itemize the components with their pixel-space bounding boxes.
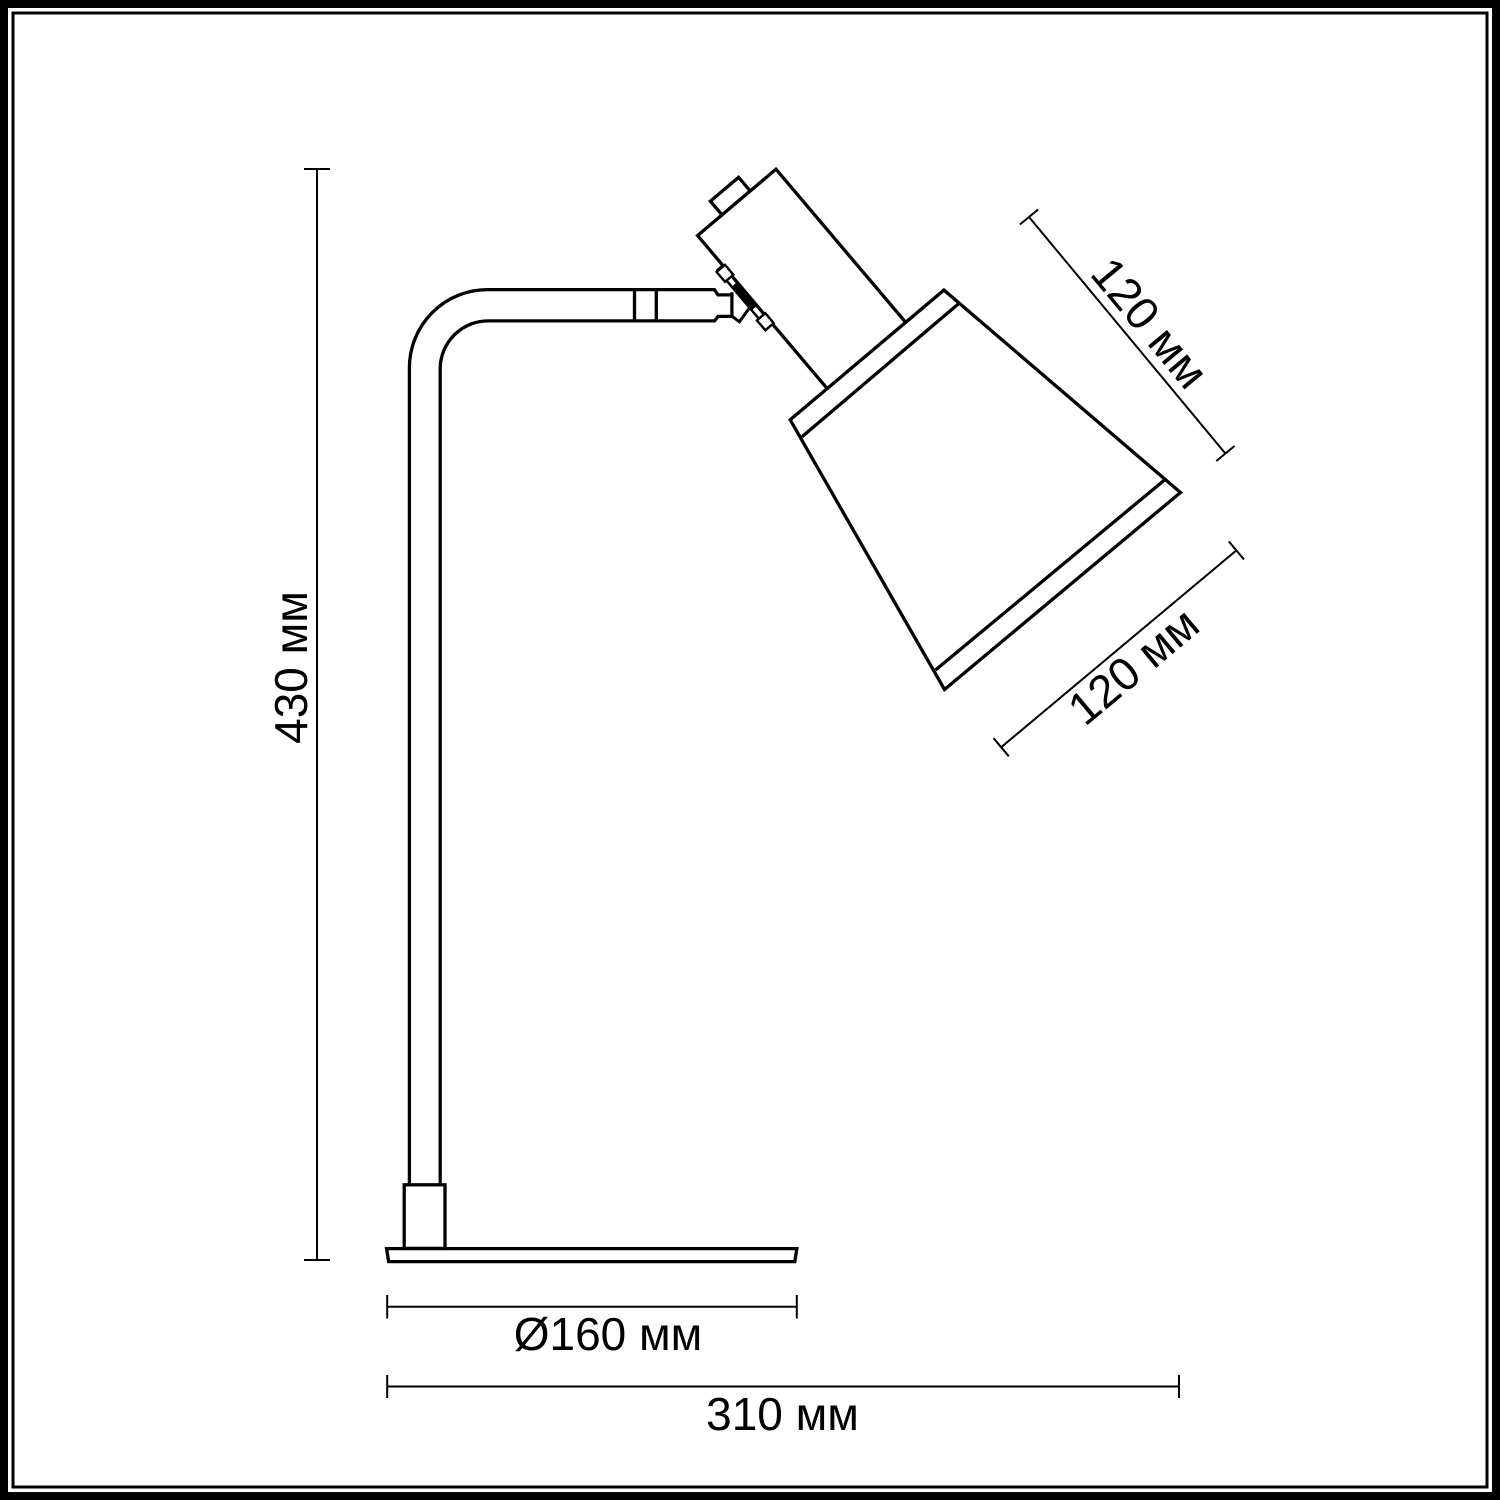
svg-text:310 мм: 310 мм	[706, 1388, 859, 1440]
svg-text:430 мм: 430 мм	[265, 591, 317, 744]
svg-text:Ø160 мм: Ø160 мм	[514, 1308, 703, 1360]
